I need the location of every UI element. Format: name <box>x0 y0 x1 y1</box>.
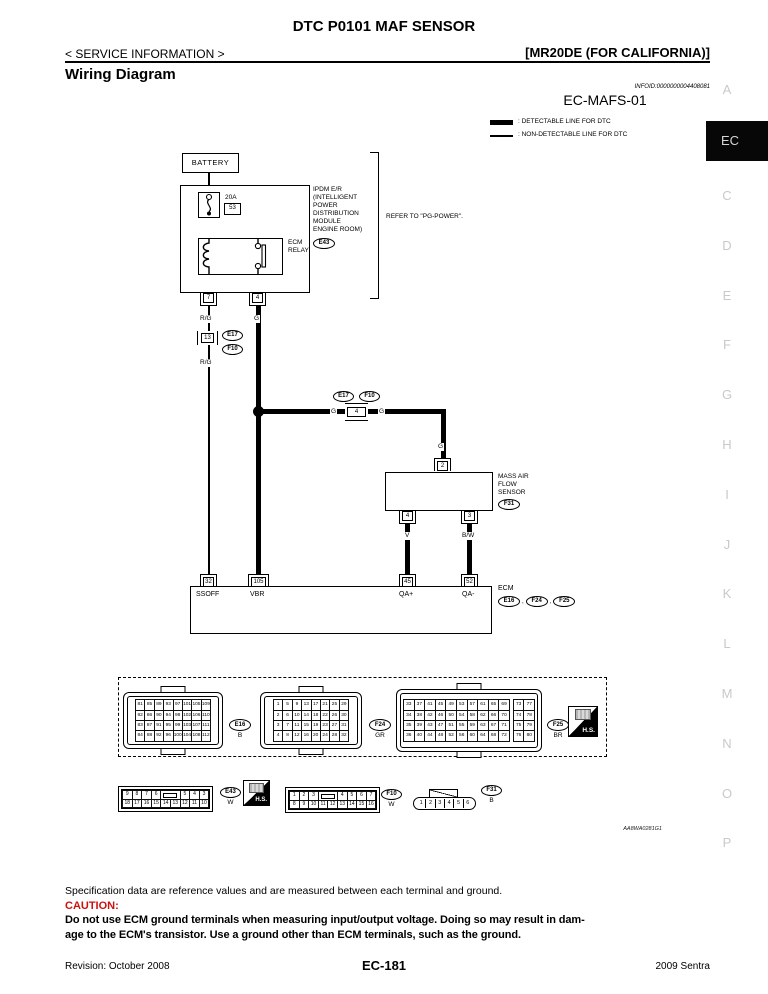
connector-view-f31: 123456 <box>413 797 476 810</box>
infoid-label: INFOID:0000000004408081 <box>500 84 710 90</box>
wire-color-label-rg: R/G <box>199 315 213 323</box>
pin-cell: 6 <box>463 799 472 809</box>
relay-internals-icon <box>198 238 283 275</box>
ecm-connector-oval: E16 <box>498 596 520 607</box>
terminal-maf-2: 2 <box>434 458 451 471</box>
sidebar-tab-m[interactable]: M <box>714 686 740 701</box>
sidebar-tab-l[interactable]: L <box>714 636 740 651</box>
connector-id-oval-f25: F25 <box>547 719 569 731</box>
connector-tab <box>161 748 186 755</box>
legend-thin-line-swatch <box>490 135 513 137</box>
sidebar-tab-e[interactable]: E <box>714 288 740 303</box>
pin-grid: 9876543181716151413121110 <box>121 789 210 809</box>
connector-color-label: BR <box>547 732 569 739</box>
pin-cell: 4 <box>444 799 453 809</box>
header-rule <box>65 61 710 63</box>
maf-connector-oval: F31 <box>498 499 520 510</box>
terminal-maf-4: 4 <box>399 511 416 524</box>
sidebar-tab-i[interactable]: I <box>714 487 740 502</box>
connector-tab <box>457 751 482 758</box>
wire-color-label-v: V <box>404 532 410 540</box>
spec-note: Specification data are reference values … <box>65 885 502 897</box>
connector-view-f24: 1591317212529261014182226303711151923273… <box>260 692 362 749</box>
sidebar-tab-h[interactable]: H <box>714 437 740 452</box>
pin-cell: 3 <box>435 799 444 809</box>
wire-color-label-g: G <box>330 408 337 416</box>
pin-row: 48121620242832 <box>273 731 349 741</box>
wire-color-label-g: G <box>437 443 444 451</box>
ecm-terminal-name: VBR <box>250 591 264 598</box>
wire-color-label-g: G <box>378 408 385 416</box>
pin-grid: 8185899397101105109828690949810210611083… <box>127 696 219 745</box>
artwork-code: AA8WA0281G1 <box>558 826 662 832</box>
connector-id-oval-e43: E43 <box>220 787 241 798</box>
legend-thick-line-swatch <box>490 120 513 125</box>
legend-item-label: : NON-DETECTABLE LINE FOR DTC <box>517 131 628 139</box>
ecm-box <box>190 586 492 634</box>
sidebar-tab-g[interactable]: G <box>714 387 740 402</box>
connector-glyph-icon <box>249 783 264 793</box>
service-info-label: < SERVICE INFORMATION > <box>65 47 225 61</box>
caution-label: CAUTION: <box>65 900 119 912</box>
sidebar-tab-c[interactable]: C <box>714 188 740 203</box>
inline-connector-13: 13 <box>197 331 218 345</box>
connector-tab <box>457 683 482 690</box>
key-slot <box>163 793 177 799</box>
sidebar-tab-o[interactable]: O <box>714 786 740 801</box>
connector-tab <box>161 686 186 693</box>
ipdm-label: IPDM E/R (INTELLIGENT POWER DISTRIBUTION… <box>313 186 362 234</box>
caution-text-line: age to the ECM's transistor. Use a groun… <box>65 929 521 941</box>
pin-grid: 1591317212529261014182226303711151923273… <box>264 696 358 745</box>
connector-color-label: W <box>220 799 241 806</box>
sidebar-tab-p[interactable]: P <box>714 835 740 850</box>
separator: , <box>550 599 552 605</box>
connector-id-oval-f31: F31 <box>481 785 502 796</box>
connector-view-e43: 9876543181716151413121110 <box>118 786 213 812</box>
connector-view-f10: 12345678910111213141516 <box>285 787 380 813</box>
hs-label: H.S. <box>582 727 595 734</box>
connector-color-label: W <box>381 801 402 808</box>
caution-text-line: Do not use ECM ground terminals when mea… <box>65 914 585 926</box>
wiring-diagram-heading: Wiring Diagram <box>65 66 176 83</box>
connector-oval-e17: E17 <box>333 391 354 402</box>
fuse-amp-label: 20A <box>224 194 238 202</box>
sidebar-tab-f[interactable]: F <box>714 337 740 352</box>
pin-cell: 32 <box>339 730 349 741</box>
ipdm-connector-oval: E43 <box>313 238 335 249</box>
wire-color-label-rg: R/G <box>199 359 213 367</box>
separator: , <box>522 599 524 605</box>
sidebar-active-tab[interactable]: EC <box>706 121 768 161</box>
connector-oval-e17: E17 <box>222 330 243 341</box>
sidebar-tab-d[interactable]: D <box>714 238 740 253</box>
maf-sensor-box <box>385 472 493 511</box>
hs-label: H.S. <box>255 797 267 803</box>
hs-view-icon: H.S. <box>568 706 598 737</box>
ecm-connector-ovals: E16 , F24 , F25 <box>498 596 575 607</box>
footer-model: 2009 Sentra <box>600 961 710 972</box>
sidebar-tab-n[interactable]: N <box>714 736 740 751</box>
battery-box: BATTERY <box>182 153 239 173</box>
hs-view-icon: H.S. <box>243 780 270 806</box>
ecm-relay-label: ECM RELAY <box>288 239 309 254</box>
connector-id-oval-e16: E16 <box>229 719 251 731</box>
connector-tab <box>299 748 324 755</box>
pin-cell: 80 <box>523 730 535 741</box>
wire-color-label-bw: B/W <box>461 532 475 540</box>
inline-connector-4: 4 <box>345 403 368 421</box>
pin-cell: 1 <box>417 799 425 809</box>
maf-sensor-label: MASS AIR FLOW SENSOR <box>498 473 529 497</box>
ecm-terminal-name: QA- <box>462 591 474 598</box>
connector-tab <box>299 686 324 693</box>
terminal-ipdm-7: 7 <box>200 293 217 306</box>
junction-dot <box>253 406 264 417</box>
ecm-connector-oval: F25 <box>553 596 575 607</box>
pin-row: 84889296100104108112 <box>135 731 211 741</box>
connector-view-e16: 8185899397101105109828690949810210611083… <box>123 692 223 749</box>
refer-note: REFER TO "PG-POWER". <box>385 213 464 221</box>
connector-color-label: B <box>229 732 251 739</box>
ecm-connector-oval: F24 <box>526 596 548 607</box>
fuse-number-box: 53 <box>224 203 241 215</box>
wire-color-label-g: G <box>253 315 260 323</box>
connector-view-f25: 3337414549535761656973773438424650545862… <box>396 689 542 752</box>
connector-oval-f10: F10 <box>359 391 380 402</box>
sidebar-tab-j[interactable]: J <box>714 537 740 552</box>
pin-row: 8910111213141516 <box>289 801 376 810</box>
pin-row: 181716151413121110 <box>122 800 209 809</box>
pin-cell: 10 <box>199 799 210 809</box>
connector-glyph-icon <box>575 709 591 720</box>
wire-g-main <box>256 306 261 574</box>
ecm-terminal-name: QA+ <box>399 591 413 598</box>
connector-oval-f10: F10 <box>222 344 243 355</box>
pin-cell: 16 <box>366 800 377 810</box>
terminal-maf-3: 3 <box>461 511 478 524</box>
sidebar-tab-k[interactable]: K <box>714 586 740 601</box>
engine-variant-label: [MR20DE (FOR CALIFORNIA)] <box>400 45 710 60</box>
diagram-code: EC-MAFS-01 <box>540 92 670 108</box>
connector-color-label: GR <box>369 732 391 739</box>
connector-id-oval-f10: F10 <box>381 789 402 800</box>
terminal-ipdm-4: 4 <box>249 293 266 306</box>
connector-id-oval-f24: F24 <box>369 719 391 731</box>
page-title: DTC P0101 MAF SENSOR <box>0 18 768 35</box>
fuse-box <box>198 192 220 218</box>
pin-cell: 2 <box>425 799 434 809</box>
pin-cell: 5 <box>453 799 462 809</box>
connector-color-label: B <box>481 797 502 804</box>
sidebar-tab-a[interactable]: A <box>714 82 740 97</box>
key-slot <box>321 794 335 800</box>
pin-row: 364044485256606468727680 <box>403 731 535 741</box>
pin-cell: 112 <box>201 730 211 741</box>
fuse-icon <box>199 193 219 217</box>
ecm-label: ECM <box>498 585 514 592</box>
refer-bracket <box>370 152 379 299</box>
pin-cell: 72 <box>498 730 510 741</box>
legend-item-label: : DETECTABLE LINE FOR DTC <box>517 118 612 126</box>
pin-grid: 12345678910111213141516 <box>288 790 377 810</box>
pin-grid: 3337414549535761656973773438424650545862… <box>400 693 538 748</box>
manual-page: { "header": { "doc_title": "DTC P0101 MA… <box>0 0 768 994</box>
wire-rg <box>208 306 210 574</box>
ecm-terminal-name: SSOFF <box>196 591 219 598</box>
